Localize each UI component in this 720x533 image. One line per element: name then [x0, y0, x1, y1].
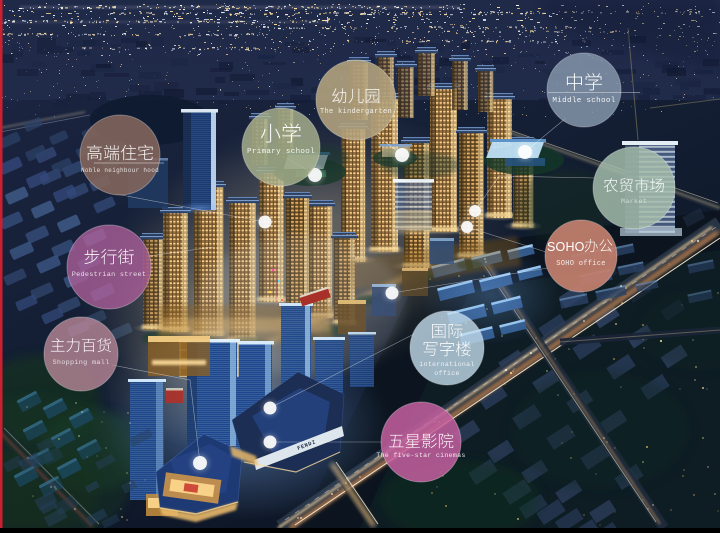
svg-text:SOHO office: SOHO office: [556, 260, 606, 268]
svg-text:international: international: [419, 361, 474, 368]
svg-text:Pedestrian street: Pedestrian street: [72, 271, 146, 279]
svg-text:Market: Market: [621, 198, 647, 206]
svg-text:Noble neighbour hood: Noble neighbour hood: [81, 167, 159, 174]
svg-text:Primary school: Primary school: [247, 148, 315, 156]
svg-text:Shopping mall: Shopping mall: [53, 359, 110, 367]
svg-text:Middle school: Middle school: [552, 97, 615, 105]
svg-text:SOHO: SOHO: [547, 240, 585, 254]
svg-text:The five-star cinemas: The five-star cinemas: [376, 452, 465, 459]
svg-text:The kindergarten: The kindergarten: [320, 108, 392, 116]
svg-text:office: office: [434, 370, 460, 377]
